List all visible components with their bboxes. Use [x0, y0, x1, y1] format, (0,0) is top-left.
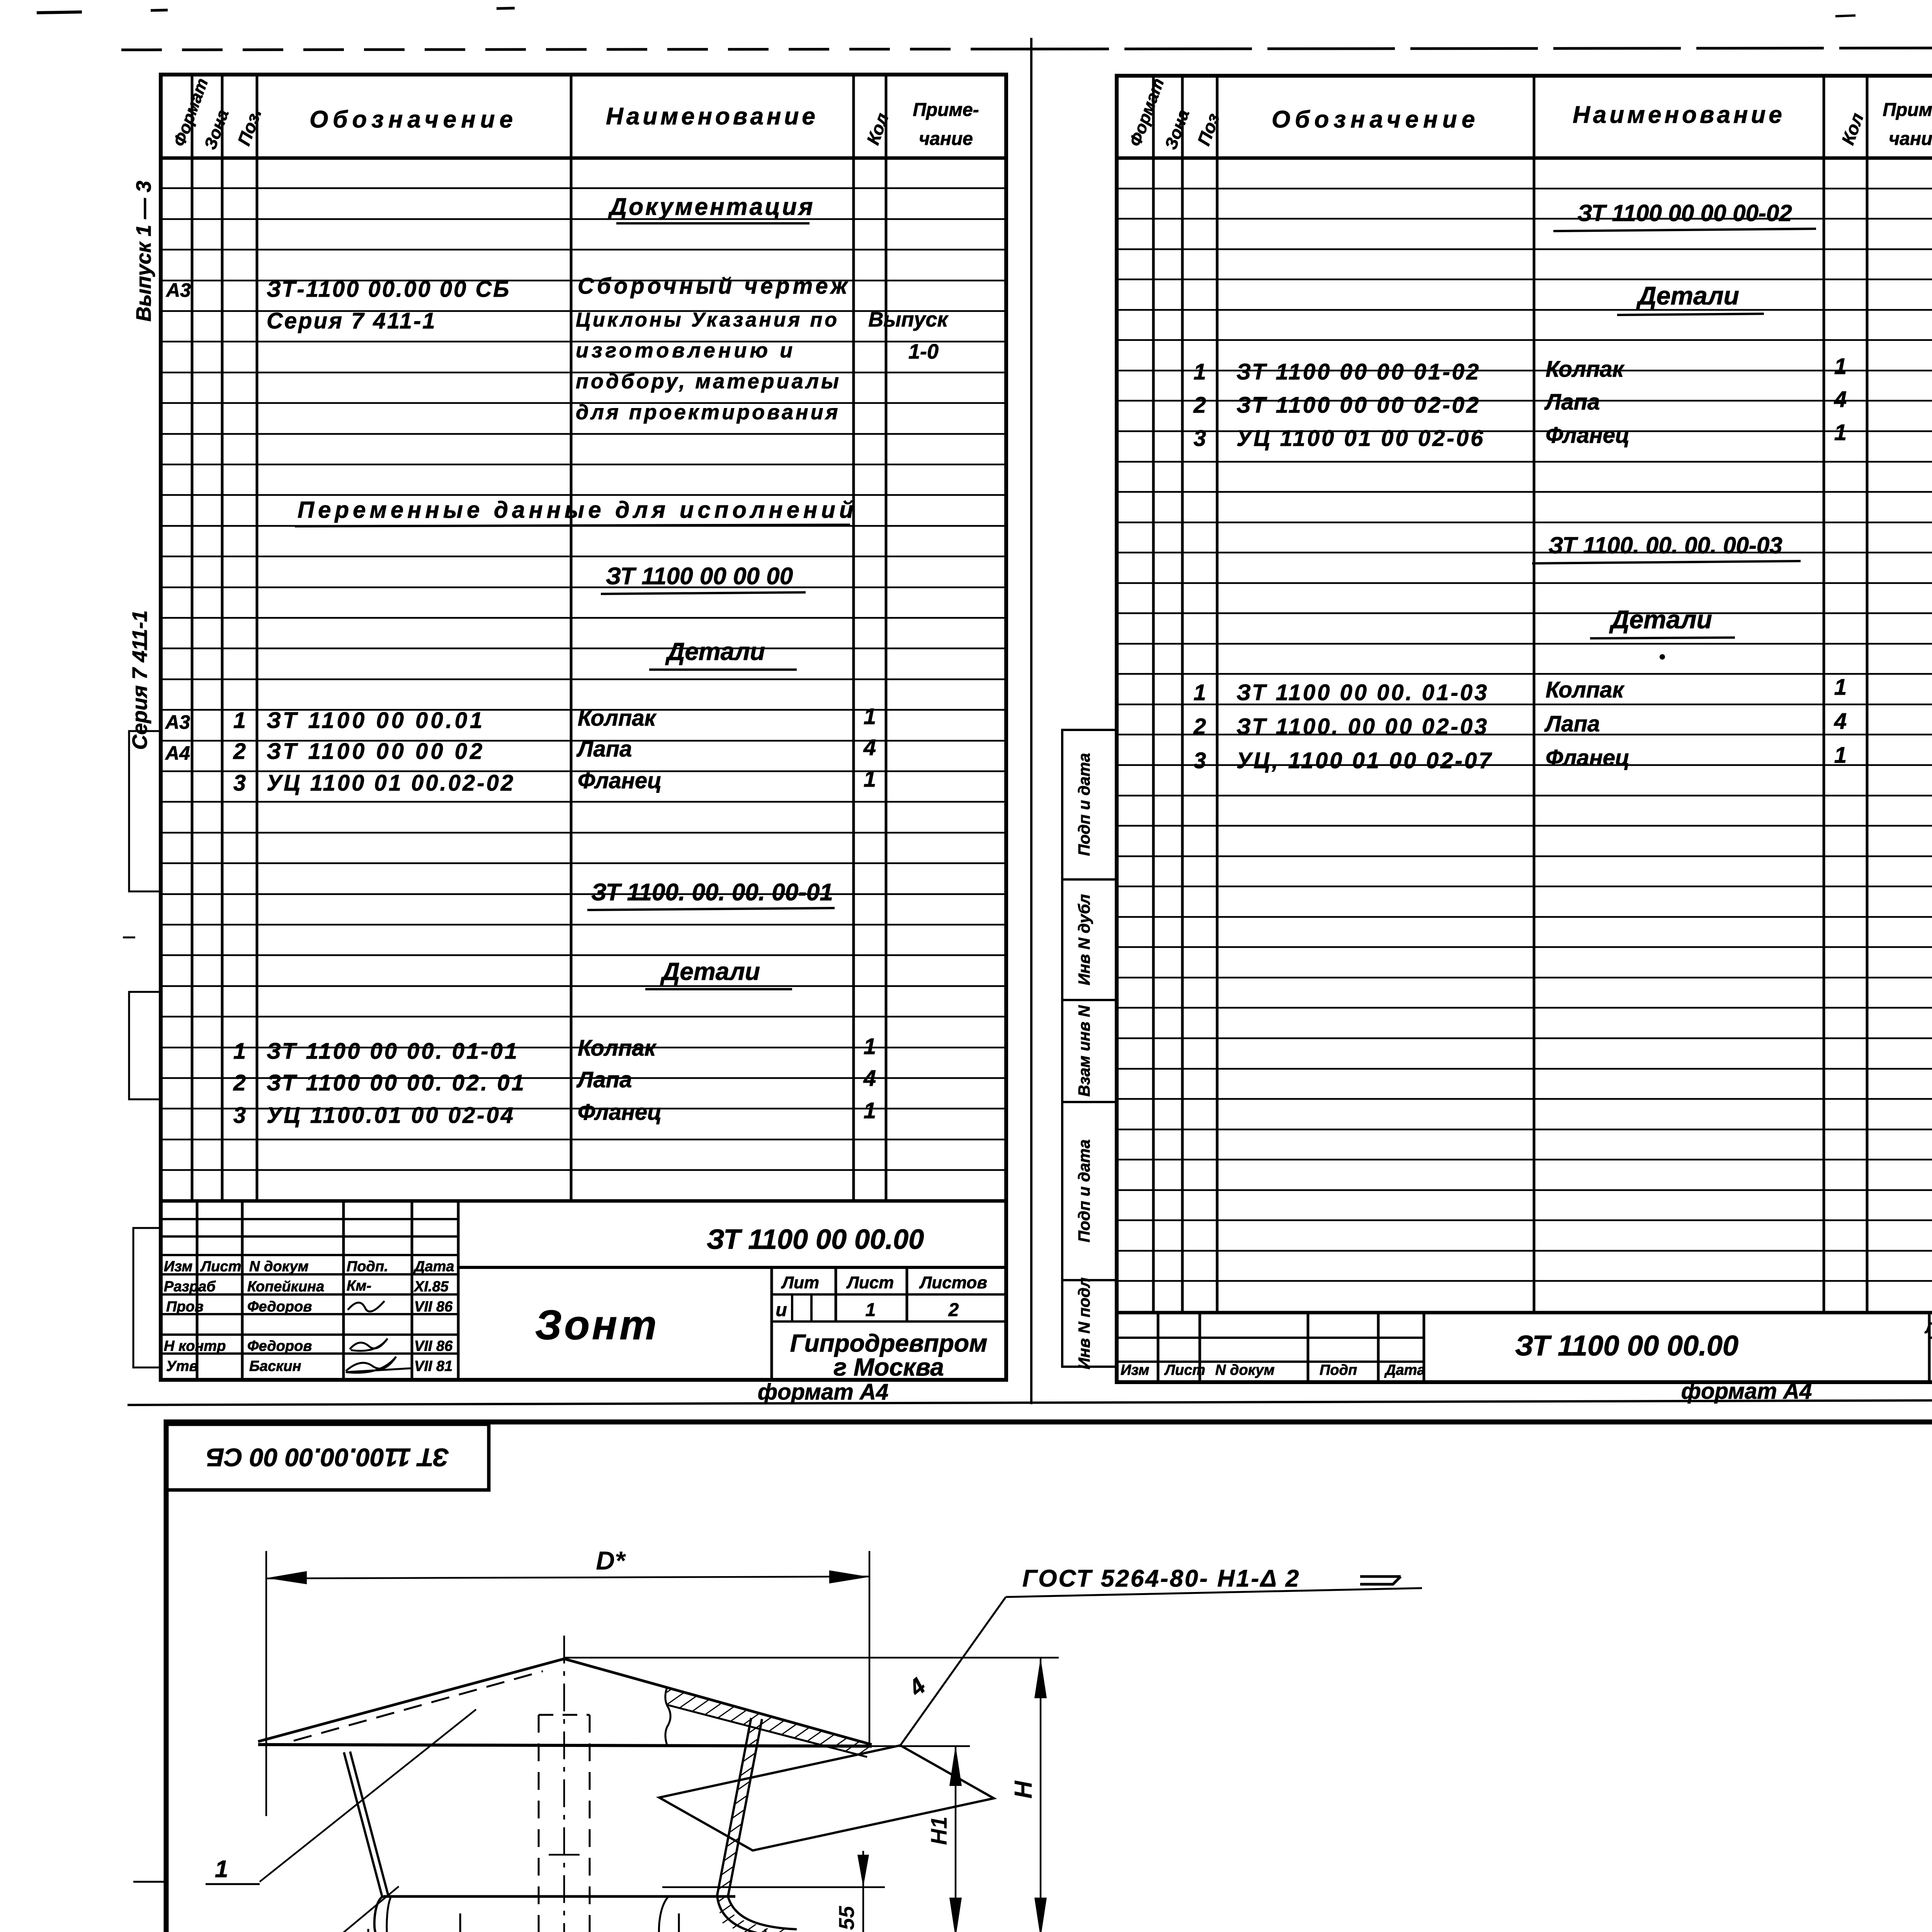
svg-text:Дата: Дата	[1384, 1362, 1425, 1378]
svg-text:2: 2	[233, 1070, 246, 1095]
svg-text:Инв N дубл: Инв N дубл	[1075, 894, 1093, 985]
svg-text:4: 4	[1834, 709, 1847, 734]
svg-text:1: 1	[864, 767, 876, 792]
svg-text:Дата: Дата	[413, 1259, 454, 1275]
svg-text:ЗТ 1100. 00. 00. 00-03: ЗТ 1100. 00. 00. 00-03	[1548, 532, 1782, 558]
svg-text:ЗТ 1100 00 00. 01-03: ЗТ 1100 00 00. 01-03	[1236, 680, 1489, 705]
svg-text:ЗТ-1100 00.00 00 СБ: ЗТ-1100 00.00 00 СБ	[267, 277, 510, 302]
svg-text:Серия 7 411-1: Серия 7 411-1	[267, 308, 437, 333]
svg-text:УЦ 1100 01 00.02-02: УЦ 1100 01 00.02-02	[267, 770, 515, 796]
svg-text:Фланец: Фланец	[578, 768, 662, 793]
svg-text:Колпак: Колпак	[578, 706, 657, 731]
svg-text:Копейкина: Копейкина	[247, 1279, 324, 1295]
svg-text:ЗТ 1100 00 00 02-02: ЗТ 1100 00 00 02-02	[1236, 393, 1481, 418]
svg-text:1: 1	[864, 1034, 876, 1059]
svg-text:Км-: Км-	[347, 1278, 371, 1294]
svg-text:3: 3	[233, 1103, 246, 1128]
svg-text:Фланец: Фланец	[578, 1100, 662, 1125]
svg-text:А4: А4	[165, 742, 190, 764]
svg-text:Выпуск: Выпуск	[868, 308, 949, 331]
svg-text:Подп и дата: Подп и дата	[1075, 753, 1093, 856]
svg-text:Документация: Документация	[607, 194, 815, 220]
svg-text:Детали: Детали	[1636, 281, 1739, 310]
svg-text:3: 3	[233, 770, 246, 796]
svg-text:Изм: Изм	[164, 1259, 192, 1275]
svg-text:А3: А3	[165, 279, 191, 301]
svg-text:Баскин: Баскин	[249, 1358, 301, 1374]
svg-text:формат А4: формат А4	[758, 1379, 888, 1405]
svg-text:Подп: Подп	[1320, 1362, 1357, 1378]
svg-text:Н: Н	[1009, 1780, 1037, 1799]
svg-text:2: 2	[948, 1300, 959, 1320]
svg-text:1: 1	[1834, 354, 1847, 379]
svg-text:Н1: Н1	[927, 1816, 952, 1845]
svg-text:4: 4	[863, 1066, 876, 1091]
svg-text:Федоров: Федоров	[247, 1299, 312, 1315]
svg-text:ЗТ 1100 00 00.00: ЗТ 1100 00 00.00	[1515, 1330, 1738, 1362]
svg-text:Лист: Лист	[846, 1273, 894, 1292]
svg-text:подбору, материалы: подбору, материалы	[576, 370, 841, 393]
svg-text:Детали: Детали	[665, 638, 765, 665]
svg-text:Наименование: Наименование	[606, 103, 818, 130]
svg-text:4: 4	[863, 735, 876, 760]
svg-text:VII 86: VII 86	[414, 1299, 453, 1315]
svg-text:VII 86: VII 86	[414, 1338, 453, 1354]
svg-text:ЗТ 1100. 00 00 02-03: ЗТ 1100. 00 00 02-03	[1236, 714, 1489, 739]
svg-text:Обозначение: Обозначение	[310, 106, 517, 133]
svg-text:1: 1	[233, 1039, 246, 1064]
svg-text:Наименование: Наименование	[1573, 102, 1785, 128]
svg-text:Подп и дата: Подп и дата	[1075, 1139, 1093, 1243]
svg-text:Лапа: Лапа	[576, 1067, 632, 1092]
svg-text:и: и	[776, 1300, 787, 1320]
svg-text:Серия 7 411-1: Серия 7 411-1	[128, 611, 151, 750]
svg-text:1: 1	[233, 708, 246, 733]
svg-text:Лапа: Лапа	[1544, 711, 1600, 736]
svg-text:ЗТ 1100 00 00. 01-01: ЗТ 1100 00 00. 01-01	[267, 1039, 519, 1064]
svg-text:г Москва: г Москва	[833, 1353, 944, 1381]
svg-text:2: 2	[233, 739, 246, 764]
svg-text:Лист: Лист	[1164, 1362, 1205, 1378]
svg-text:изготовлению и: изготовлению и	[576, 339, 796, 362]
svg-text:Обозначение: Обозначение	[1272, 106, 1480, 133]
svg-text:УЦ 1100.01 00 02-04: УЦ 1100.01 00 02-04	[267, 1103, 515, 1128]
svg-text:Утв: Утв	[166, 1358, 198, 1374]
svg-text:Лист: Лист	[200, 1259, 241, 1275]
svg-text:Колпак: Колпак	[1546, 677, 1625, 702]
svg-text:XI.85: XI.85	[413, 1279, 449, 1295]
svg-text:ГОСТ 5264-80- Н1-Δ 2: ГОСТ 5264-80- Н1-Δ 2	[1022, 1565, 1300, 1592]
svg-text:ЗТ 1100. 00. 00. 00-01: ЗТ 1100. 00. 00. 00-01	[591, 879, 833, 906]
svg-text:ЗТ 1100.00.00 00 СБ: ЗТ 1100.00.00 00 СБ	[206, 1443, 449, 1472]
svg-text:Приме-: Приме-	[1883, 100, 1932, 120]
svg-text:N докум: N докум	[249, 1259, 309, 1275]
svg-text:Циклоны Указания по: Циклоны Указания по	[576, 309, 839, 331]
svg-text:D*: D*	[596, 1546, 626, 1575]
svg-text:2: 2	[1193, 393, 1206, 418]
svg-text:Взам инв N: Взам инв N	[1075, 1005, 1093, 1097]
svg-text:Листов: Листов	[919, 1273, 987, 1292]
svg-text:Сборочный чертеж: Сборочный чертеж	[578, 274, 850, 299]
svg-text:чание: чание	[919, 129, 973, 149]
svg-text:ЗТ 1100 00 00 00: ЗТ 1100 00 00 00	[606, 563, 793, 590]
svg-text:Лист: Лист	[1924, 1320, 1932, 1337]
svg-text:Зонт: Зонт	[535, 1301, 659, 1348]
svg-text:1: 1	[1834, 675, 1847, 700]
svg-text:ЗТ 1100 00 00 02: ЗТ 1100 00 00 02	[267, 739, 485, 764]
svg-text:1: 1	[866, 1300, 876, 1320]
svg-text:Изм: Изм	[1121, 1362, 1149, 1378]
svg-text:1-0: 1-0	[908, 340, 939, 363]
svg-text:УЦ 1100 01 00 02-06: УЦ 1100 01 00 02-06	[1236, 426, 1485, 451]
svg-text:N докум: N докум	[1215, 1362, 1275, 1378]
svg-text:1: 1	[1194, 680, 1206, 705]
svg-text:Приме-: Приме-	[913, 100, 979, 120]
svg-text:3: 3	[1194, 748, 1206, 773]
svg-text:Фланец: Фланец	[1546, 745, 1630, 770]
svg-text:А3: А3	[165, 711, 190, 733]
svg-text:Лапа: Лапа	[576, 736, 632, 762]
svg-text:ЗТ 1100 00 00.01: ЗТ 1100 00 00.01	[267, 708, 485, 733]
svg-text:VII 81: VII 81	[414, 1358, 452, 1374]
svg-text:2: 2	[1193, 714, 1206, 739]
svg-text:Разраб: Разраб	[164, 1279, 216, 1295]
svg-text:1: 1	[864, 704, 876, 729]
svg-text:Фланец: Фланец	[1546, 423, 1630, 448]
svg-text:ЗТ 1100 00 00. 02. 01: ЗТ 1100 00 00. 02. 01	[267, 1070, 526, 1095]
svg-text:Детали: Детали	[660, 957, 760, 985]
svg-text:для проектирования: для проектирования	[576, 401, 840, 424]
svg-text:55: 55	[834, 1906, 859, 1930]
svg-text:ЗТ 1100 00 00.00: ЗТ 1100 00 00.00	[707, 1224, 924, 1255]
svg-text:Колпак: Колпак	[1546, 357, 1625, 382]
svg-text:чание: чание	[1889, 129, 1932, 149]
svg-text:УЦ, 1100 01 00 02-07: УЦ, 1100 01 00 02-07	[1236, 748, 1493, 773]
svg-text:Лапа: Лапа	[1544, 389, 1600, 415]
svg-text:Пров: Пров	[166, 1299, 204, 1315]
svg-text:Выпуск 1 — 3: Выпуск 1 — 3	[132, 181, 155, 322]
svg-text:Подп.: Подп.	[347, 1259, 388, 1275]
svg-text:1: 1	[1194, 359, 1206, 384]
svg-text:1: 1	[1834, 420, 1847, 445]
svg-text:ЗТ 1100 00 00 01-02: ЗТ 1100 00 00 01-02	[1236, 359, 1481, 384]
svg-text:1: 1	[864, 1098, 876, 1123]
svg-text:Инв N подл: Инв N подл	[1075, 1277, 1093, 1369]
svg-text:Переменные данные для испол: Переменные данные для исполнений	[298, 497, 857, 523]
svg-text:Детали: Детали	[1609, 605, 1712, 634]
svg-text:4: 4	[1834, 387, 1847, 412]
svg-text:1: 1	[1834, 743, 1847, 768]
svg-text:3: 3	[1194, 426, 1206, 451]
svg-text:1: 1	[215, 1856, 228, 1883]
svg-text:Федоров: Федоров	[247, 1338, 312, 1354]
svg-text:ЗТ 1100 00 00 00-02: ЗТ 1100 00 00 00-02	[1577, 200, 1792, 226]
svg-text:Колпак: Колпак	[578, 1036, 657, 1061]
svg-text:Лит: Лит	[781, 1273, 819, 1292]
svg-text:Н контр: Н контр	[164, 1338, 226, 1354]
